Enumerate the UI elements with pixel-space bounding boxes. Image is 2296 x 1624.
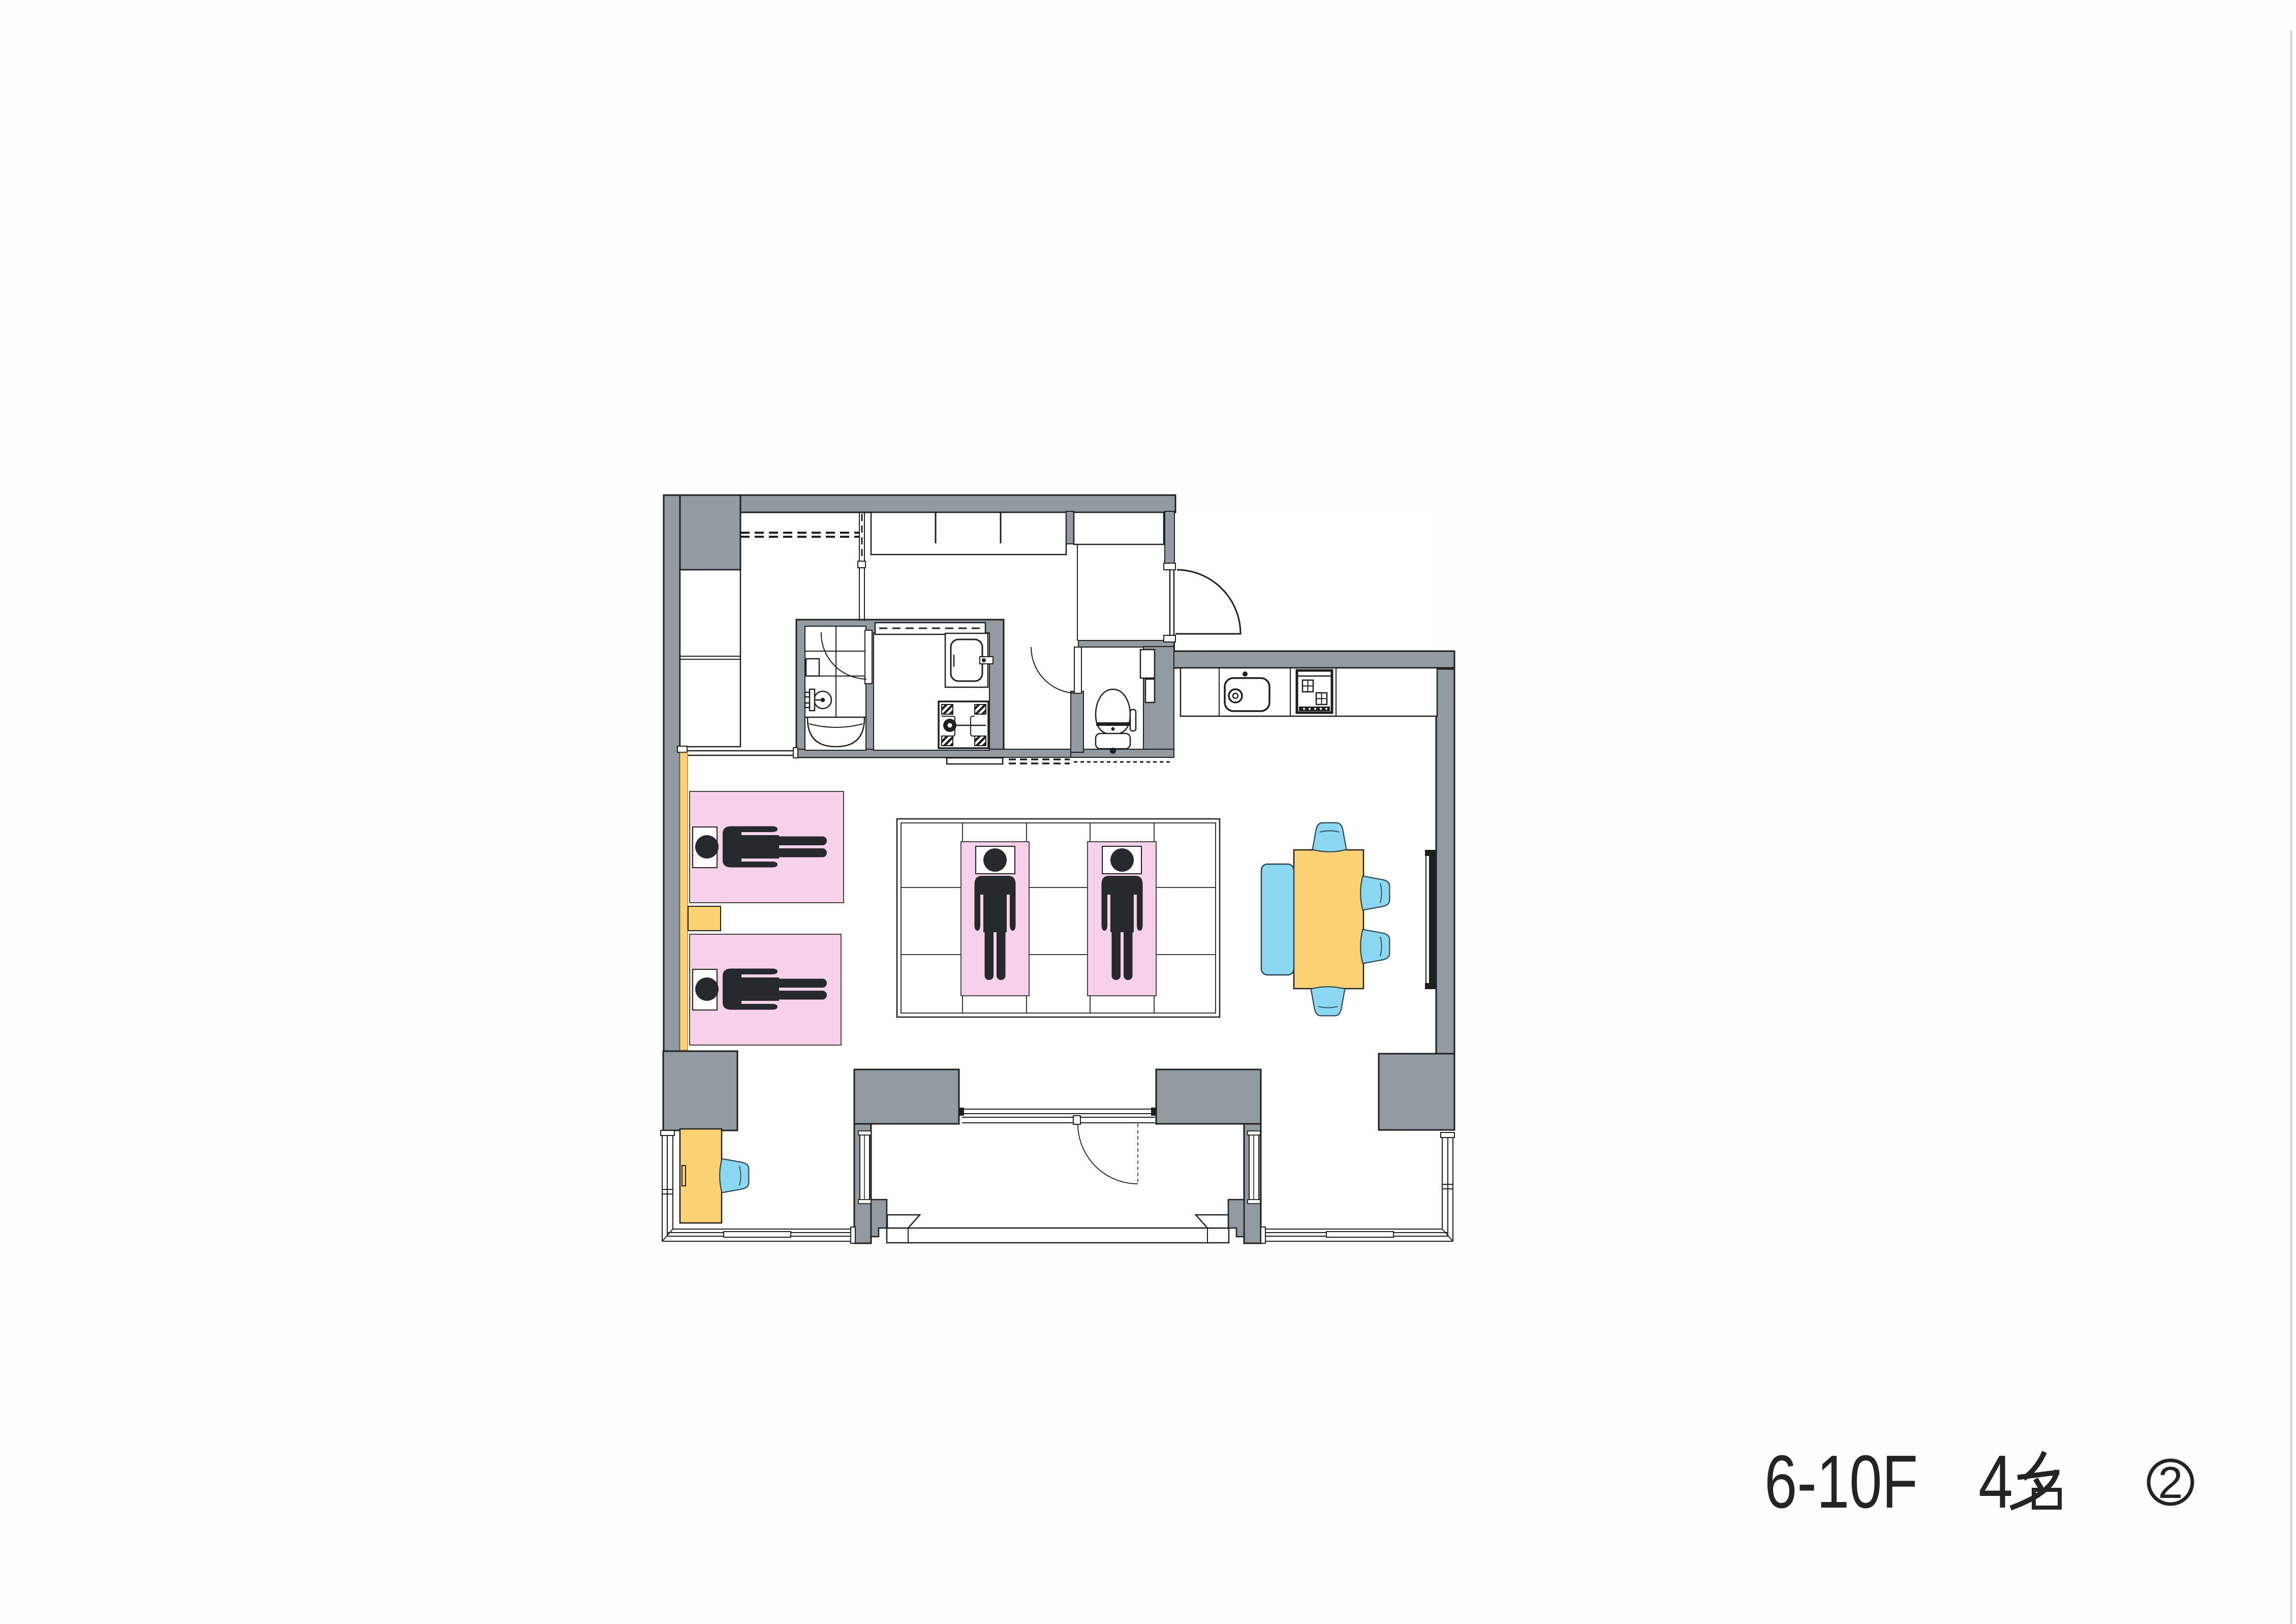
svg-text:4: 4 (1978, 1440, 2013, 1524)
svg-text:6-10F: 6-10F (1764, 1440, 1918, 1524)
svg-text:2: 2 (2158, 1457, 2183, 1508)
